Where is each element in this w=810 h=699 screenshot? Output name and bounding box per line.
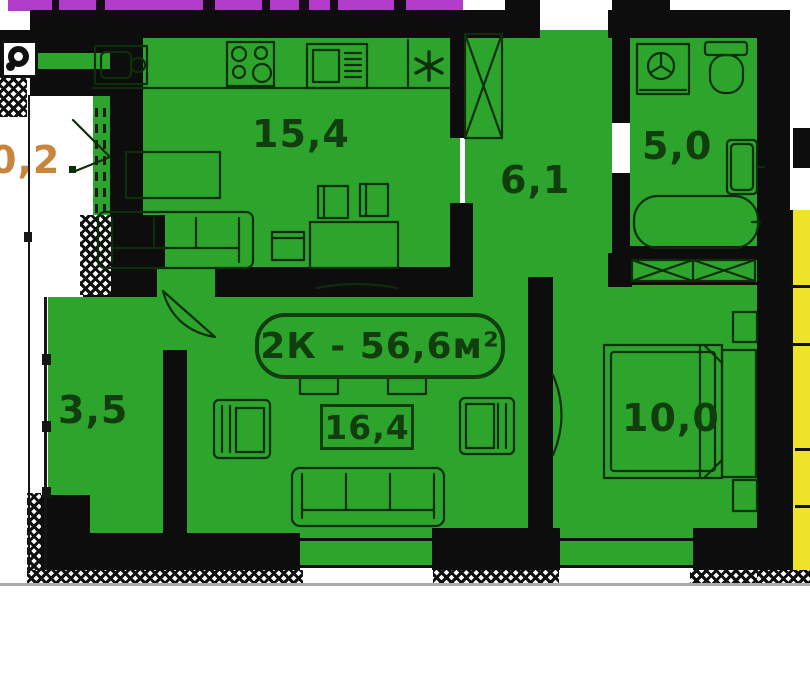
wall [40, 495, 90, 537]
window [300, 538, 432, 568]
window-mullion [24, 232, 32, 242]
hatched-wall [0, 77, 27, 117]
wall [450, 203, 473, 273]
wall [612, 173, 630, 255]
wall [612, 246, 758, 260]
entry-opening [540, 0, 608, 30]
wall [612, 0, 670, 11]
wall [163, 350, 187, 540]
plot-baseline [0, 583, 810, 586]
wall [432, 528, 560, 570]
vent-dot [6, 62, 15, 71]
window [560, 538, 693, 568]
room-label-hallway: 6,1 [500, 158, 570, 202]
room-label-kitchen: 15,4 [252, 112, 350, 156]
room-label-storage: 3,5 [58, 388, 128, 432]
window-mullion [42, 421, 51, 432]
balcony-glazing [95, 108, 98, 214]
window-wall-line [44, 297, 47, 570]
plan-title-box: 2К - 56,6м² [255, 313, 505, 379]
built-in-wardrobe-area [630, 258, 757, 284]
neighbor-line [793, 285, 810, 288]
balcony-glazing [103, 108, 106, 214]
neighbor-apartment-strip [790, 210, 810, 584]
living-doorway [157, 267, 215, 297]
hatched-wall [757, 570, 810, 584]
room-label-living-box: 16,4 [320, 404, 414, 450]
wall [505, 0, 541, 11]
room-label-bathroom: 5,0 [642, 124, 712, 168]
wall [793, 128, 810, 168]
wall [30, 10, 540, 38]
neighbor-line [793, 343, 810, 346]
room-label-balcony: 0,2 [0, 138, 60, 182]
neighbor-line [795, 448, 810, 451]
wall [110, 95, 143, 217]
window-mullion [42, 354, 51, 365]
plan-title: 2К - 56,6м² [259, 317, 501, 377]
wall [35, 533, 300, 570]
wall [608, 10, 758, 38]
kitchen-duct [36, 53, 110, 69]
wall [83, 267, 473, 297]
wall [693, 528, 780, 570]
wall [528, 277, 553, 539]
neighbor-line [795, 505, 810, 508]
room-label-living: 16,4 [323, 407, 411, 448]
window-mullion [42, 487, 51, 498]
wall [757, 10, 790, 572]
storage-doorway [163, 297, 187, 353]
hatched-wall [80, 215, 111, 295]
room-label-bedroom: 10,0 [622, 396, 720, 440]
wall [612, 38, 630, 123]
wall [630, 282, 757, 285]
floor-plan: 15,4 6,1 5,0 3,5 10,0 0,2 16,4 2К - 56,6… [0, 0, 810, 699]
wall [450, 38, 466, 138]
